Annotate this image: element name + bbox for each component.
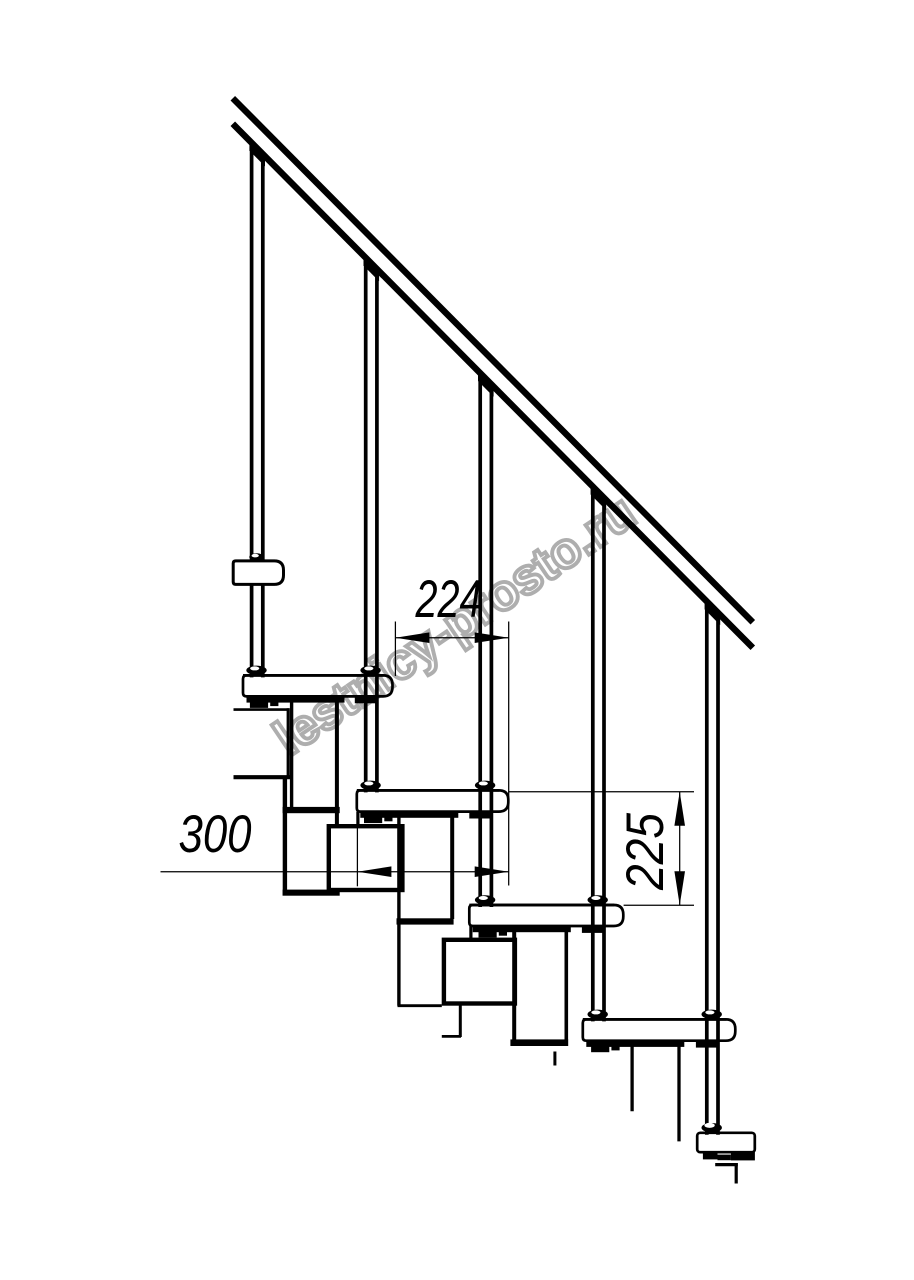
svg-text:224: 224 <box>415 570 482 629</box>
svg-text:225: 225 <box>616 813 675 891</box>
svg-text:300: 300 <box>179 805 252 864</box>
